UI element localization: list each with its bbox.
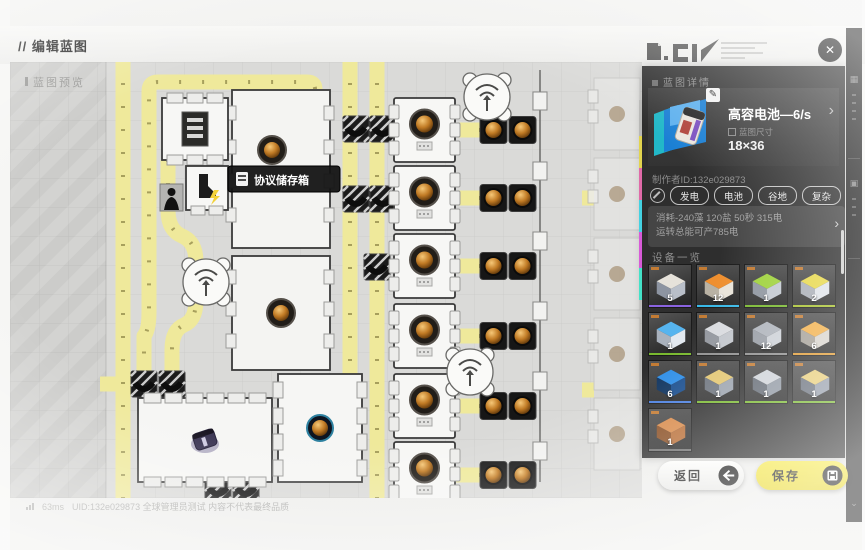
quality-bar [745,401,787,404]
equipment-count: 1 [745,293,787,304]
equipment-item[interactable]: 5 [648,264,692,308]
page-title: // 编辑蓝图 [18,36,88,55]
equipment-count: 1 [697,389,739,400]
equipment-item[interactable]: 12 [696,264,740,308]
stats-box[interactable]: 消耗-240藻 120盐 50秒 315电 运转总能可产785电 › [648,206,845,247]
rail-collapse-icon[interactable]: ⌄ [849,498,859,508]
quality-bar [745,305,787,308]
creator-id: 制作者ID:132e029873 [652,172,745,186]
tag-row: 发电电池谷地复杂 [650,186,841,205]
rail-box-icon[interactable]: ▣ [849,178,859,188]
equipment-count: 6 [649,389,691,400]
wide-assembler-block[interactable] [138,393,272,487]
preview-label: 蓝图预览 [25,74,85,90]
right-machine-row[interactable] [588,78,640,470]
stats-line1: 消耗-240藻 120盐 50秒 315电 [656,212,835,226]
quality-bar [697,305,739,308]
equipment-count: 1 [745,389,787,400]
equipment-count: 1 [649,437,691,448]
equipment-item[interactable]: 2 [792,264,836,308]
status-bar: 63ms UID:132e029873 全球管理员测试 内容不代表最终品质 [26,500,289,513]
size-label: 蓝图尺寸 [728,126,773,138]
equipment-item[interactable]: 1 [696,312,740,356]
back-arrow-icon [718,465,739,486]
close-button[interactable]: ✕ [818,38,842,62]
quality-bar [793,353,835,356]
equipment-count: 5 [649,293,691,304]
equipment-item[interactable]: 1 [744,360,788,404]
equipment-count: 6 [793,341,835,352]
label-tick-icon [25,77,28,86]
map-tooltip: 协议储存箱 [228,166,340,192]
equipment-item[interactable]: 1 [648,312,692,356]
edit-icon[interactable]: ✎ [706,88,720,102]
tooltip-label: 协议储存箱 [254,173,309,187]
frame-edge-left [0,0,10,550]
quality-bar [649,353,691,356]
generator-blocks[interactable] [389,98,460,498]
tag-pill: 谷地 [758,186,797,205]
tag-pill: 发电 [670,186,709,205]
equipment-count: 1 [793,389,835,400]
stats-line2: 运转总能可产785电 [656,226,835,240]
equipment-grid: 5 12 1 2 [648,264,839,452]
quality-bar [649,449,691,452]
tag-pill: 复杂 [802,186,841,205]
signal-icon [26,503,34,510]
save-disk-icon [822,465,843,486]
equipment-count: 1 [697,341,739,352]
equipment-title: 设备一览 [652,250,702,265]
quality-bar [697,353,739,356]
side-rail: ▦ ▣ ⌄ [846,28,862,522]
tag-pill: 电池 [714,186,753,205]
equipment-item[interactable]: 1 [648,408,692,452]
equipment-count: 1 [649,341,691,352]
quality-bar [745,353,787,356]
equipment-item[interactable]: 1 [744,264,788,308]
app-logo [645,36,775,66]
boot-station-block[interactable] [186,166,228,215]
quality-bar [793,305,835,308]
ping-value: 63ms [42,502,64,512]
person-marker [160,184,183,211]
equipment-count: 12 [697,293,739,304]
equipment-item[interactable]: 1 [792,360,836,404]
close-icon: ✕ [825,44,835,56]
size-value: 18×36 [728,138,765,153]
size-icon [728,128,736,136]
panel-scrollbar[interactable] [841,230,844,274]
quality-bar [697,401,739,404]
chevron-right-icon: › [834,216,839,230]
equipment-item[interactable]: 1 [696,360,740,404]
quality-bar [649,305,691,308]
blueprint-name: 高容电池—6/s [728,104,823,123]
refiner-block[interactable] [273,374,367,482]
equipment-count: 2 [793,293,835,304]
rainbow-strip [639,100,642,300]
equipment-item[interactable]: 12 [744,312,788,356]
status-text: UID:132e029873 全球管理员测试 内容不代表最终品质 [72,500,289,513]
tag-icon [650,188,665,203]
blueprint-canvas[interactable]: 协议储存箱 [10,62,642,498]
section-mark-icon [652,80,658,86]
quality-bar [649,401,691,404]
chevron-right-icon[interactable]: › [829,102,834,120]
back-button[interactable]: 返回 [658,461,744,490]
storage-block[interactable] [162,93,228,165]
blueprint-card[interactable]: ✎ 高容电池—6/s › 蓝图尺寸 18×36 [648,88,839,166]
machine-frame[interactable] [226,256,334,370]
equipment-item[interactable]: 6 [648,360,692,404]
blueprint-thumbnail [650,96,722,156]
quality-bar [793,401,835,404]
panel-section-title: 蓝图详情 [652,74,711,89]
blueprint-detail-panel: 蓝图详情 ✎ 高容电池—6/s › 蓝图尺寸 18×36 制作者ID:132e0… [642,66,845,458]
save-button[interactable]: 保存 [756,461,848,490]
equipment-item[interactable]: 6 [792,312,836,356]
rail-grid-icon[interactable]: ▦ [849,74,859,84]
equipment-count: 12 [745,341,787,352]
